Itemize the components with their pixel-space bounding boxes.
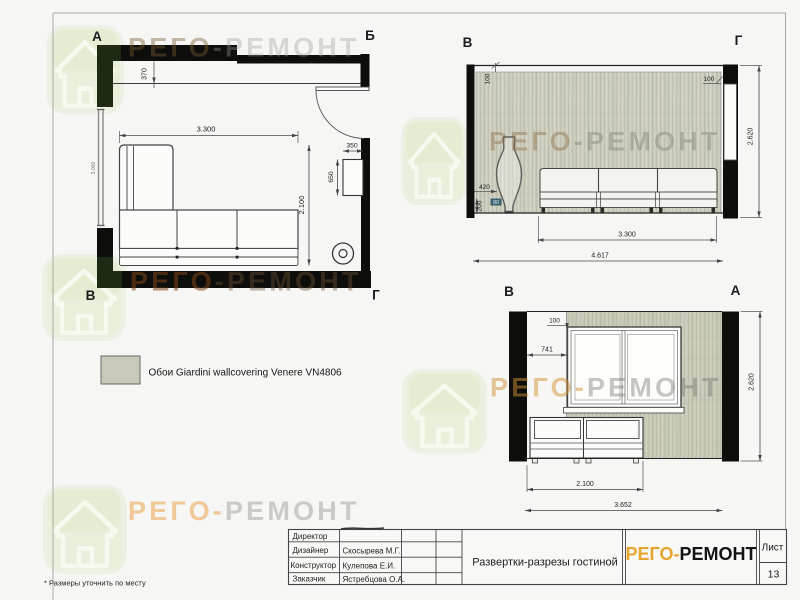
svg-text:100: 100 <box>485 73 492 84</box>
svg-text:2.620: 2.620 <box>749 373 756 391</box>
svg-text:741: 741 <box>541 347 553 354</box>
svg-text:* Размеры уточнить по месту: * Размеры уточнить по месту <box>44 579 146 588</box>
svg-text:РЕГО-РЕМОНТ: РЕГО-РЕМОНТ <box>128 33 360 63</box>
svg-text:Заказчик: Заказчик <box>293 575 326 584</box>
svg-text:А: А <box>731 283 741 298</box>
svg-text:2.100: 2.100 <box>297 196 306 215</box>
svg-text:РЕГО-РЕМОНТ: РЕГО-РЕМОНТ <box>489 127 721 157</box>
svg-text:Б: Б <box>365 28 375 43</box>
svg-text:3.300: 3.300 <box>618 232 636 239</box>
svg-text:В: В <box>86 288 96 303</box>
svg-text:Скосырева М.Г.: Скосырева М.Г. <box>343 546 401 555</box>
svg-text:РЕГО-РЕМОНТ: РЕГО-РЕМОНТ <box>128 496 360 526</box>
svg-text:100: 100 <box>549 318 560 325</box>
svg-text:В: В <box>504 284 514 299</box>
svg-text:А: А <box>92 29 102 44</box>
svg-text:350: 350 <box>346 143 358 150</box>
svg-text:Конструктор: Конструктор <box>291 561 337 570</box>
svg-text:В: В <box>463 35 473 50</box>
svg-text:Обои Giardini wallcovering Ven: Обои Giardini wallcovering Venere VN4806 <box>149 367 343 379</box>
svg-text:100: 100 <box>704 76 715 83</box>
svg-text:370: 370 <box>142 68 149 80</box>
svg-text:Кулепова Е.И.: Кулепова Е.И. <box>343 561 396 570</box>
svg-text:Г: Г <box>735 33 743 48</box>
svg-text:3.000: 3.000 <box>91 162 97 175</box>
svg-text:Директор: Директор <box>293 532 328 541</box>
svg-text:Лист: Лист <box>762 543 784 554</box>
svg-text:4.617: 4.617 <box>591 253 609 260</box>
svg-text:2.620: 2.620 <box>748 128 755 146</box>
svg-text:80: 80 <box>493 200 499 206</box>
svg-text:Г: Г <box>372 288 380 303</box>
svg-text:650: 650 <box>328 171 335 183</box>
svg-text:Дизайнер: Дизайнер <box>293 546 329 555</box>
svg-text:Ястребцова О.А.: Ястребцова О.А. <box>343 575 406 584</box>
svg-text:420: 420 <box>479 184 490 191</box>
svg-text:2.100: 2.100 <box>576 481 594 488</box>
svg-text:13: 13 <box>768 569 780 581</box>
svg-text:Развертки-разрезы гостиной: Развертки-разрезы гостиной <box>472 557 617 569</box>
svg-text:РЕГО-РЕМОНТ: РЕГО-РЕМОНТ <box>626 544 757 564</box>
svg-text:3.300: 3.300 <box>197 125 216 134</box>
svg-text:РЕГО-РЕМОНТ: РЕГО-РЕМОНТ <box>130 267 362 297</box>
svg-text:РЕГО-РЕМОНТ: РЕГО-РЕМОНТ <box>490 373 722 403</box>
svg-text:200: 200 <box>477 200 484 211</box>
svg-text:3.652: 3.652 <box>614 502 632 509</box>
